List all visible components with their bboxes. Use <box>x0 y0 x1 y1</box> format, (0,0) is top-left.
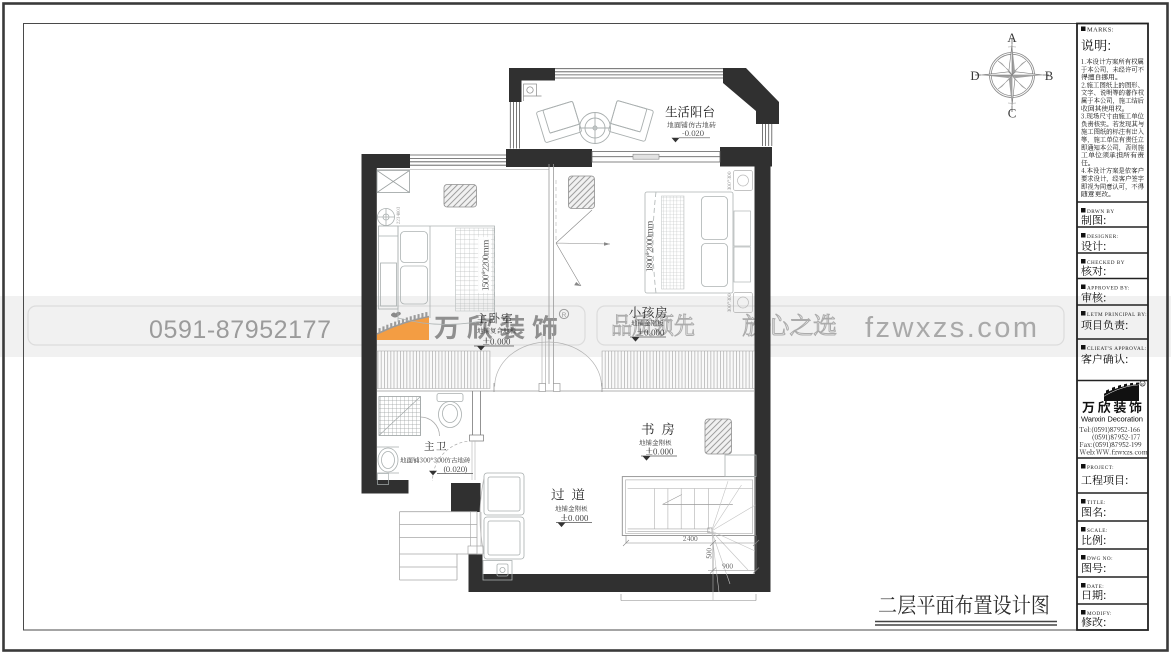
svg-text:图名:: 图名: <box>1081 504 1107 520</box>
svg-text:C: C <box>1008 103 1017 122</box>
svg-text:300*300: 300*300 <box>726 171 733 190</box>
svg-text:说明:: 说明: <box>1081 35 1111 54</box>
svg-text:图号:: 图号: <box>1081 560 1107 576</box>
svg-text:D: D <box>970 65 979 84</box>
svg-text:客户确认:: 客户确认: <box>1081 351 1129 367</box>
svg-text:2400: 2400 <box>683 534 697 543</box>
svg-text:书房: 书房 <box>641 418 682 438</box>
svg-text:制图:: 制图: <box>1081 212 1107 228</box>
svg-text:生活阳台: 生活阳台 <box>665 102 715 121</box>
svg-text:900: 900 <box>722 562 733 571</box>
svg-text:主卧室: 主卧室 <box>476 311 514 327</box>
svg-text:修改:: 修改: <box>1081 614 1107 630</box>
svg-text:审核:: 审核: <box>1081 290 1107 306</box>
svg-text:R: R <box>562 312 567 319</box>
svg-text:R: R <box>1141 382 1144 387</box>
svg-text:A: A <box>1007 27 1017 46</box>
svg-text:1500*2200mm: 1500*2200mm <box>479 239 492 291</box>
svg-text:地铺复合地板: 地铺复合地板 <box>477 326 517 335</box>
svg-text:500: 500 <box>705 548 714 560</box>
svg-text:工程项目:: 工程项目: <box>1081 472 1129 488</box>
svg-text:MARKS:: MARKS: <box>1087 27 1114 34</box>
svg-text:项目负责:: 项目负责: <box>1081 317 1129 333</box>
svg-text:Web:WW.fzwxzs.com: Web:WW.fzwxzs.com <box>1080 448 1149 457</box>
svg-text:设计:: 设计: <box>1081 238 1107 254</box>
svg-text:Wanxin Decoration: Wanxin Decoration <box>1081 415 1143 424</box>
svg-text:300*300: 300*300 <box>726 293 733 312</box>
svg-text:0591-87952177: 0591-87952177 <box>149 316 331 344</box>
svg-text:主卫: 主卫 <box>424 439 448 454</box>
svg-text:随意更改。: 随意更改。 <box>1081 189 1115 199</box>
svg-text:比例:: 比例: <box>1081 532 1107 548</box>
svg-text:地铺金刚板: 地铺金刚板 <box>555 504 588 513</box>
svg-text:2234003: 2234003 <box>396 206 402 225</box>
svg-text:1800*2000mm: 1800*2000mm <box>643 220 656 272</box>
svg-text:PROJECT:: PROJECT: <box>1087 465 1114 471</box>
svg-text:地铺金刚板: 地铺金刚板 <box>631 319 664 328</box>
svg-text:核对:: 核对: <box>1081 263 1107 279</box>
svg-text:过道: 过道 <box>551 484 592 504</box>
svg-text:B: B <box>1045 65 1054 84</box>
svg-text:-0.020: -0.020 <box>682 128 704 139</box>
svg-text:日期:: 日期: <box>1081 587 1107 603</box>
svg-text:二层平面布置设计图: 二层平面布置设计图 <box>878 589 1050 620</box>
